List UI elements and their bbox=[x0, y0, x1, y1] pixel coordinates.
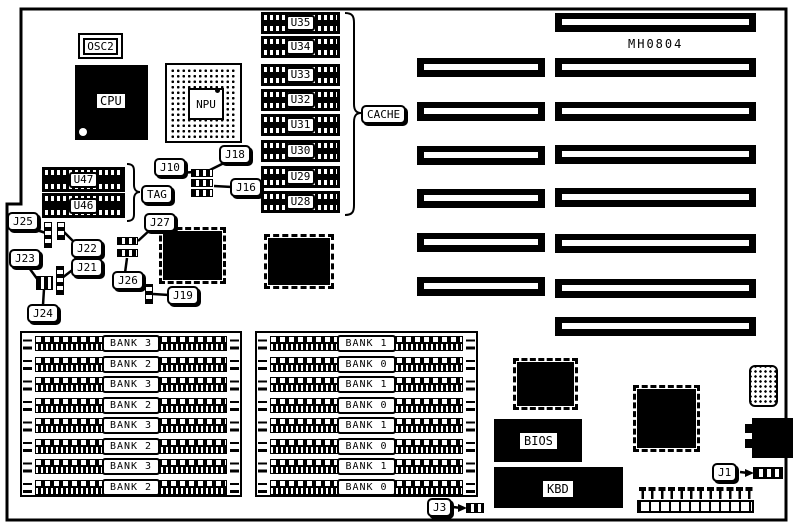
jumper-label-j26: J26 bbox=[112, 271, 144, 290]
u34-label: U34 bbox=[286, 39, 316, 55]
cache-chip-u29: U29 bbox=[261, 166, 340, 188]
simm-socket: BANK 0 bbox=[270, 357, 463, 372]
simm-socket: BANK 1 bbox=[270, 459, 463, 474]
bank-label: BANK 2 bbox=[102, 438, 160, 455]
u28-label: U28 bbox=[286, 194, 316, 210]
jumper-block-j27 bbox=[117, 237, 138, 245]
bank-label: BANK 1 bbox=[337, 335, 395, 352]
u30-label: U30 bbox=[286, 143, 316, 159]
bank-label: BANK 2 bbox=[102, 397, 160, 414]
jumper-block-j3 bbox=[466, 503, 484, 513]
simm-socket: BANK 3 bbox=[35, 459, 227, 474]
expansion-slot-long-3 bbox=[555, 102, 756, 121]
jumper-label-j22: J22 bbox=[71, 239, 103, 258]
simm-socket: BANK 2 bbox=[35, 357, 227, 372]
expansion-slot-short-5 bbox=[417, 233, 545, 252]
kbd-label: KBD bbox=[543, 481, 573, 497]
simm-socket: BANK 2 bbox=[35, 398, 227, 413]
npu-socket: NPU bbox=[165, 63, 242, 143]
tag-brace bbox=[127, 164, 140, 221]
u47-label: U47 bbox=[69, 172, 99, 188]
bank-label: BANK 2 bbox=[102, 356, 160, 373]
keyboard-controller-qfp bbox=[633, 385, 700, 452]
bank-label: BANK 0 bbox=[337, 438, 395, 455]
u33-label: U33 bbox=[286, 67, 316, 83]
npu-chip: NPU bbox=[188, 88, 224, 120]
power-connector bbox=[749, 365, 778, 407]
expansion-slot-short-2 bbox=[417, 102, 545, 121]
bank-label: BANK 0 bbox=[337, 356, 395, 373]
kbd-chip: KBD bbox=[494, 467, 623, 508]
simm-socket: BANK 2 bbox=[35, 439, 227, 454]
simm-socket: BANK 0 bbox=[270, 398, 463, 413]
simm-socket: BANK 1 bbox=[270, 418, 463, 433]
expansion-slot-long-5 bbox=[555, 188, 756, 207]
jumper-label-j10: J10 bbox=[154, 158, 186, 177]
io-qfp-chip bbox=[513, 358, 578, 410]
jumper-block-j19 bbox=[145, 284, 153, 304]
jumper-label-j19: J19 bbox=[167, 286, 199, 305]
u46-label: U46 bbox=[69, 198, 99, 214]
jumper-label-j21: J21 bbox=[71, 258, 103, 277]
chipset-qfp-right bbox=[264, 234, 334, 289]
expansion-slot-long-6 bbox=[555, 234, 756, 253]
u29-label: U29 bbox=[286, 169, 316, 185]
expansion-slot-short-1 bbox=[417, 58, 545, 77]
bank-label: BANK 1 bbox=[337, 458, 395, 475]
jumper-label-j3: J3 bbox=[427, 498, 452, 517]
jumper-block-j25 bbox=[44, 222, 52, 248]
bank-label: BANK 3 bbox=[102, 458, 160, 475]
jumper-label-j24: J24 bbox=[27, 304, 59, 323]
chipset-qfp-left bbox=[159, 227, 226, 284]
expansion-slot-short-6 bbox=[417, 277, 545, 296]
jumper-block-j21 bbox=[56, 266, 64, 295]
npu-pin1-dot bbox=[215, 88, 220, 93]
din-connector-tab-bottom bbox=[745, 439, 753, 448]
simm-block-right: BANK 1 BANK 0 BANK 1 BANK 0 BANK 1 BANK … bbox=[255, 331, 478, 497]
cache-chip-u30: U30 bbox=[261, 140, 340, 162]
simm-socket: BANK 3 bbox=[35, 336, 227, 351]
jumper-block-j18 bbox=[191, 169, 213, 177]
jumper-label-j16: J16 bbox=[230, 178, 262, 197]
expansion-slot-long-2 bbox=[555, 58, 756, 77]
bank-label: BANK 3 bbox=[102, 335, 160, 352]
tag-chip-u47: U47 bbox=[42, 167, 125, 192]
simm-socket: BANK 1 bbox=[270, 336, 463, 351]
expansion-slot-long-4 bbox=[555, 145, 756, 164]
osc2-label: OSC2 bbox=[83, 38, 118, 55]
motherboard-diagram: OSC2 CPU NPU U35 U34 U33 U32 U31 U30 U29… bbox=[0, 0, 793, 527]
cache-chip-u31: U31 bbox=[261, 114, 340, 136]
jumper-label-j25: J25 bbox=[7, 212, 39, 231]
din-connector-tab-top bbox=[745, 424, 753, 433]
u35-label: U35 bbox=[286, 15, 316, 31]
tag-callout: TAG bbox=[141, 185, 173, 204]
simm-socket: BANK 2 bbox=[35, 480, 227, 495]
bios-label: BIOS bbox=[520, 433, 557, 449]
board-model-number: MH0804 bbox=[628, 37, 683, 51]
jumper-label-j18: J18 bbox=[219, 145, 251, 164]
jumper-label-j27: J27 bbox=[144, 213, 176, 232]
keyboard-din-connector bbox=[752, 418, 793, 458]
jumper-block-j10 bbox=[191, 179, 213, 187]
jumper-block-j26 bbox=[117, 249, 138, 257]
oscillator-osc2: OSC2 bbox=[78, 33, 123, 59]
simm-socket: BANK 0 bbox=[270, 439, 463, 454]
u31-label: U31 bbox=[286, 117, 316, 133]
jumper-label-j1: J1 bbox=[712, 463, 737, 482]
simm-block-left: BANK 3 BANK 2 BANK 3 BANK 2 BANK 3 BANK … bbox=[20, 331, 242, 497]
expansion-slot-long-7 bbox=[555, 279, 756, 298]
bank-label: BANK 1 bbox=[337, 417, 395, 434]
bank-label: BANK 3 bbox=[102, 417, 160, 434]
simm-socket: BANK 1 bbox=[270, 377, 463, 392]
jumper-block-j24 bbox=[36, 276, 53, 290]
jumper-block-j16 bbox=[191, 189, 213, 197]
simm-socket: BANK 0 bbox=[270, 480, 463, 495]
bank-label: BANK 3 bbox=[102, 376, 160, 393]
simm-socket: BANK 3 bbox=[35, 418, 227, 433]
cache-chip-u33: U33 bbox=[261, 64, 340, 86]
u32-label: U32 bbox=[286, 92, 316, 108]
simm-socket: BANK 3 bbox=[35, 377, 227, 392]
cpu-label: CPU bbox=[96, 93, 126, 109]
expansion-slot-long-8 bbox=[555, 317, 756, 336]
bank-label: BANK 2 bbox=[102, 479, 160, 496]
expansion-slot-short-3 bbox=[417, 146, 545, 165]
pin-header-base bbox=[637, 500, 754, 513]
cache-chip-u34: U34 bbox=[261, 36, 340, 58]
expansion-slot-long-1 bbox=[555, 13, 756, 32]
bank-label: BANK 1 bbox=[337, 376, 395, 393]
pin-header-pins bbox=[639, 487, 753, 499]
cache-callout: CACHE bbox=[361, 105, 406, 124]
cpu-pin1-dot bbox=[79, 128, 87, 136]
expansion-slot-short-4 bbox=[417, 189, 545, 208]
bank-label: BANK 0 bbox=[337, 397, 395, 414]
jumper-block-j22 bbox=[57, 222, 65, 240]
j1-connector bbox=[753, 467, 783, 479]
jumper-label-j23: J23 bbox=[9, 249, 41, 268]
cache-chip-u35: U35 bbox=[261, 12, 340, 34]
cache-chip-u32: U32 bbox=[261, 89, 340, 111]
bios-chip: BIOS bbox=[494, 419, 582, 462]
bank-label: BANK 0 bbox=[337, 479, 395, 496]
cache-chip-u28: U28 bbox=[261, 191, 340, 213]
cache-brace bbox=[345, 13, 361, 215]
tag-chip-u46: U46 bbox=[42, 193, 125, 218]
npu-label: NPU bbox=[196, 98, 216, 111]
